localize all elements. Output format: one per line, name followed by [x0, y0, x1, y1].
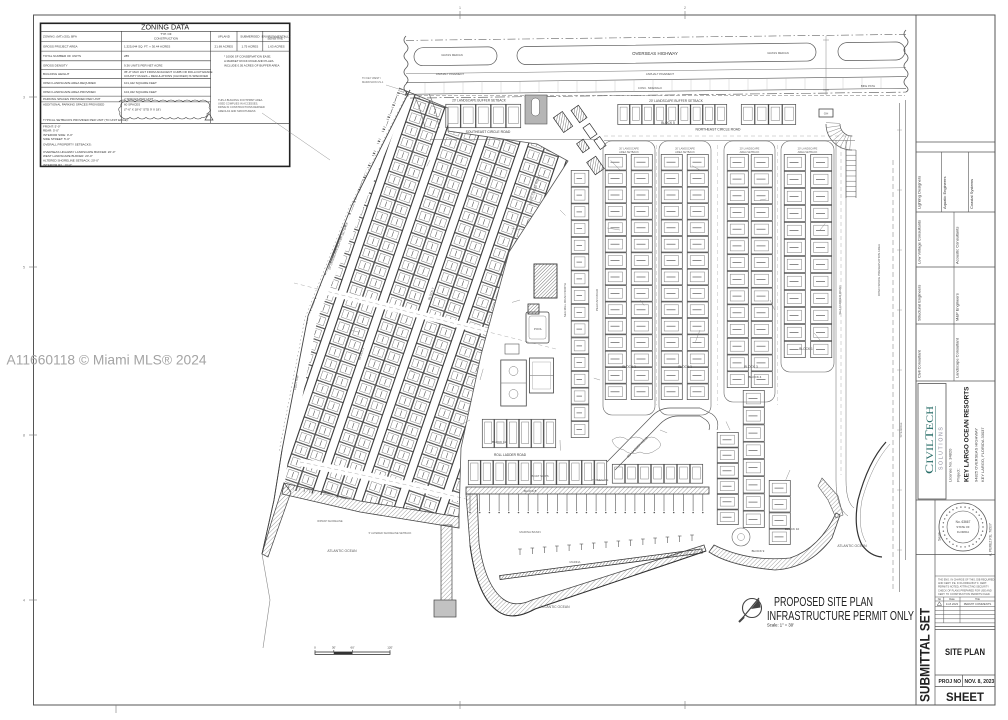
- svg-text:SEA MILL ROAD NORTH: SEA MILL ROAD NORTH: [563, 283, 567, 317]
- svg-text:20' LANDSCAPE BUFFER SETBACK: 20' LANDSCAPE BUFFER SETBACK: [649, 99, 704, 103]
- svg-text:OVERALL PROPERTY SETBACKS:: OVERALL PROPERTY SETBACKS:: [43, 143, 92, 147]
- svg-text:SOUTHEAST CIRCLE ROAD: SOUTHEAST CIRCLE ROAD: [466, 130, 511, 134]
- svg-text:CERT. TO CONSTRUCTION PERMITS: CERT. TO CONSTRUCTION PERMITS FILED.: [938, 593, 991, 596]
- svg-text:OPEN LANDSCAPE AREA PROVIDED: OPEN LANDSCAPE AREA PROVIDED: [43, 90, 97, 94]
- svg-text:AND CERT. P.E. IN FLORIDA BUT: AND CERT. P.E. IN FLORIDA BUT F. CERT.: [938, 582, 987, 585]
- svg-text:RIPRAP SHORELINE: RIPRAP SHORELINE: [317, 519, 343, 523]
- svg-text:DRIVE IN CONSTRUCTIONS DEFINED: DRIVE IN CONSTRUCTIONS DEFINED: [218, 105, 265, 109]
- svg-text:SOLUTIONS: SOLUTIONS: [939, 426, 945, 470]
- svg-text:SEA FARRIER ROAD: SEA FARRIER ROAD: [838, 285, 842, 315]
- svg-text:CONSTRUCTION: CONSTRUCTION: [154, 37, 178, 41]
- svg-text:ROLL LADDER ROAD: ROLL LADDER ROAD: [494, 453, 527, 457]
- svg-text:OPEN LANDSCAPE AREA REQUIRED: OPEN LANDSCAPE AREA REQUIRED: [43, 81, 97, 85]
- svg-text:SUBMERGED: SUBMERGED: [240, 35, 260, 39]
- svg-text:Coastal Systems: Coastal Systems: [969, 179, 974, 209]
- svg-text:AREOLAS AND SMOOTHNESS: AREOLAS AND SMOOTHNESS: [218, 109, 256, 113]
- svg-text:CHECK OF PLANS PREPARED FOR US: CHECK OF PLANS PREPARED FOR USE AND: [938, 589, 992, 592]
- svg-text:NOV. 8, 2023: NOV. 8, 2023: [965, 679, 995, 685]
- svg-text:* 10000 SF CONSERVATION EASE: * 10000 SF CONSERVATION EASE.: [224, 55, 271, 59]
- svg-text:Low Voltage Consultants: Low Voltage Consultants: [917, 220, 922, 264]
- svg-text:PERMIT COMMENTS: PERMIT COMMENTS: [964, 602, 992, 606]
- svg-text:POOL: POOL: [534, 327, 543, 331]
- svg-text:AREA SETBACK: AREA SETBACK: [798, 150, 818, 154]
- svg-text:20' LANDSCAPE: 20' LANDSCAPE: [740, 147, 760, 151]
- svg-text:GROSS PROJECT AREA: GROSS PROJECT AREA: [43, 45, 77, 49]
- svg-text:TO KEY WEST /: TO KEY WEST /: [362, 76, 381, 80]
- svg-text:Title: Title: [975, 597, 980, 601]
- svg-text:FLORIDA: FLORIDA: [957, 530, 969, 534]
- svg-text:UPLAND: UPLAND: [218, 35, 231, 39]
- svg-text:Acoustic Consultants: Acoustic Consultants: [955, 227, 960, 264]
- svg-text:5' ALTERED SHORELINE SETBACK: 5' ALTERED SHORELINE SETBACK: [369, 531, 412, 535]
- svg-text:INCLUDE 0.05 ACRES OF BUFFER A: INCLUDE 0.05 ACRES OF BUFFER AREA: [224, 64, 279, 68]
- svg-text:TOTAL NUMBER OF UNITS: TOTAL NUMBER OF UNITS: [43, 54, 81, 58]
- svg-text:BIKE PATH: BIKE PATH: [861, 84, 875, 88]
- svg-text:104,342 SQUARE FEET: 104,342 SQUARE FEET: [124, 90, 157, 94]
- svg-text:M&P Engineers: M&P Engineers: [955, 293, 960, 321]
- svg-text:ADDITIONAL PARKING SPACES PROV: ADDITIONAL PARKING SPACES PROVIDED: [43, 103, 105, 107]
- svg-text:BOAT SLIPS: BOAT SLIPS: [531, 474, 548, 478]
- svg-text:PELICAN ROAD: PELICAN ROAD: [595, 288, 599, 311]
- svg-text:A11660118 © Miami MLS® 2024: A11660118 © Miami MLS® 2024: [7, 353, 207, 368]
- svg-text:(7'-6" X 18'-0" STD 9' X 18'): (7'-6" X 18'-0" STD 9' X 18'): [124, 108, 161, 112]
- svg-text:Civil Consultant: Civil Consultant: [917, 349, 922, 378]
- svg-text:20' LANDSCAPE: 20' LANDSCAPE: [798, 147, 818, 151]
- svg-text:AREA SETBACK: AREA SETBACK: [740, 150, 760, 154]
- svg-text:KEY LARGO, FLORIDA 33037: KEY LARGO, FLORIDA 33037: [980, 427, 985, 482]
- svg-text:SENSITIVE *: SENSITIVE *: [267, 37, 286, 41]
- svg-text:ZONING: (MT) (SS), BFA: ZONING: (MT) (SS), BFA: [43, 35, 77, 39]
- svg-text:KEY LARGO OCEAN RESORTS: KEY LARGO OCEAN RESORTS: [964, 386, 971, 482]
- svg-text:License No. 34820: License No. 34820: [948, 448, 953, 482]
- svg-text:MARINA: MARINA: [570, 560, 581, 564]
- svg-text:ATLANTIC OCEAN: ATLANTIC OCEAN: [327, 549, 357, 553]
- svg-text:BLOCK 3: BLOCK 3: [622, 365, 636, 369]
- svg-text:ZONING DATA: ZONING DATA: [141, 23, 189, 32]
- svg-text:AREA SETBACK: AREA SETBACK: [675, 150, 695, 154]
- svg-text:BUILDING HEIGHT: BUILDING HEIGHT: [43, 72, 70, 76]
- svg-text:INTERIOR R/L: 10'-0": INTERIOR R/L: 10'-0": [43, 163, 72, 167]
- svg-text:COUNTY RULES + REGULATIONS (CH: COUNTY RULES + REGULATIONS (CHOKER) IS S…: [124, 74, 209, 78]
- svg-text:Aquatic Engineers: Aquatic Engineers: [942, 177, 947, 209]
- svg-text:No. 63667: No. 63667: [956, 520, 971, 524]
- svg-text:20' LANDSCAPE: 20' LANDSCAPE: [675, 147, 695, 151]
- svg-text:ASPHALT PAVEMENT: ASPHALT PAVEMENT: [646, 72, 675, 76]
- svg-text:No: No: [938, 597, 942, 601]
- svg-text:BLOCK 9: BLOCK 9: [752, 549, 765, 553]
- svg-text:SUBMITTAL SET: SUBMITTAL SET: [917, 608, 933, 702]
- svg-text:TYPICAL SETBACKS PROVIDED PER: TYPICAL SETBACKS PROVIDED PER UNIT (TO U…: [43, 118, 129, 122]
- svg-text:Project:: Project:: [956, 468, 961, 482]
- svg-text:USED COMPLIES IN ACCESSES,: USED COMPLIES IN ACCESSES,: [218, 102, 258, 106]
- svg-text:ATLANTIC OCEAN: ATLANTIC OCEAN: [837, 544, 867, 548]
- svg-text:Date: Date: [949, 597, 955, 601]
- svg-text:ASPHALT PAVEMENT: ASPHALT PAVEMENT: [436, 72, 465, 76]
- svg-text:11.8.2023: 11.8.2023: [946, 602, 959, 606]
- svg-text:A MARKET ROCK ROAD AND PLAZA: A MARKET ROCK ROAD AND PLAZA: [224, 59, 274, 63]
- svg-text:1.75 ACRES: 1.75 ACRES: [241, 45, 258, 49]
- svg-text:Landscape Consultant: Landscape Consultant: [955, 337, 960, 378]
- svg-text:285: 285: [124, 54, 129, 58]
- svg-text:1,325,044 SQ. FT. + 30.44 ACRE: 1,325,044 SQ. FT. + 30.44 ACRES: [124, 45, 170, 49]
- svg-text:PROMENADE: PROMENADE: [592, 478, 609, 482]
- svg-text:60 SPACES: 60 SPACES: [124, 103, 140, 107]
- svg-text:INFRASTRUCTURE PERMIT ONLY: INFRASTRUCTURE PERMIT ONLY: [767, 609, 914, 623]
- svg-text:THE ENG. IN CHARGE OF THIS JOB: THE ENG. IN CHARGE OF THIS JOB REQUIRED: [938, 579, 995, 582]
- svg-text:Scale: 1" = 30': Scale: 1" = 30': [767, 623, 794, 628]
- svg-text:GH: GH: [824, 112, 829, 116]
- svg-text:AREA SETBACK: AREA SETBACK: [619, 150, 639, 154]
- svg-text:ATLANTIC OCEAN: ATLANTIC OCEAN: [540, 605, 570, 609]
- svg-text:BLOCK 11: BLOCK 11: [492, 440, 506, 444]
- svg-text:PROPOSED SITE PLAN: PROPOSED SITE PLAN: [774, 595, 873, 609]
- svg-text:SHEET: SHEET: [946, 690, 985, 704]
- svg-text:GROSS DENSITY: GROSS DENSITY: [43, 63, 68, 67]
- svg-text:PERMITS NOTED, ATTRACTING SECU: PERMITS NOTED, ATTRACTING SECURITY: [938, 586, 989, 589]
- svg-text:60': 60': [351, 646, 355, 650]
- svg-text:Lighting Designers: Lighting Designers: [917, 176, 922, 209]
- svg-text:MARINA BASIN: MARINA BASIN: [519, 530, 540, 534]
- svg-text:BLOCK 4: BLOCK 4: [749, 375, 762, 379]
- svg-text:GRASS MEDIAN: GRASS MEDIAN: [767, 51, 788, 55]
- svg-text:BLOCK 3: BLOCK 3: [744, 365, 758, 369]
- svg-text:120': 120': [387, 646, 393, 650]
- svg-text:A. PEREZ P.E. 76507: A. PEREZ P.E. 76507: [989, 523, 993, 556]
- svg-text:1.63 ACRES: 1.63 ACRES: [268, 45, 285, 49]
- svg-text:GRASS MEDIAN: GRASS MEDIAN: [441, 53, 462, 57]
- svg-text:30': 30': [332, 646, 336, 650]
- svg-text:CONC. SIDEWALK: CONC. SIDEWALK: [638, 86, 662, 90]
- svg-text:21.69 ACRES: 21.69 ACRES: [215, 45, 234, 49]
- svg-text:BLOCK 10: BLOCK 10: [785, 527, 800, 531]
- svg-text:OPEN SPACE PRESERVATION AREA: OPEN SPACE PRESERVATION AREA: [877, 244, 881, 296]
- svg-text:20' LANDSCAPE: 20' LANDSCAPE: [619, 147, 639, 151]
- svg-text:SITE PLAN: SITE PLAN: [945, 646, 985, 657]
- svg-text:NORTHEAST CIRCLE ROAD: NORTHEAST CIRCLE ROAD: [696, 128, 741, 132]
- svg-text:SITE EDGE: SITE EDGE: [899, 422, 903, 437]
- svg-text:OVERSEAS HIGHWAY: OVERSEAS HIGHWAY: [632, 51, 678, 56]
- svg-text:PARKING SPACES PROVIDED PER UN: PARKING SPACES PROVIDED PER UNIT: [43, 97, 101, 101]
- svg-text:SIDE STREET: 5'-0": SIDE STREET: 5'-0": [43, 137, 70, 141]
- svg-text:BLOCK 3: BLOCK 3: [678, 365, 692, 369]
- svg-text:Structural Engineers: Structural Engineers: [917, 285, 922, 321]
- svg-text:101,442 SQUARE FEET: 101,442 SQUARE FEET: [124, 81, 157, 85]
- svg-text:STATE OF: STATE OF: [956, 525, 970, 529]
- svg-text:BLOCK 5: BLOCK 5: [661, 121, 675, 125]
- svg-text:BLOCK 1: BLOCK 1: [799, 347, 813, 351]
- svg-text:PROJ NO: PROJ NO: [939, 679, 962, 685]
- svg-text:THIS A BUILDING FOOTPRINT AREA: THIS A BUILDING FOOTPRINT AREA: [218, 98, 263, 102]
- svg-text:20' LANDSCAPE BUFFER SETBACK: 20' LANDSCAPE BUFFER SETBACK: [452, 99, 507, 103]
- svg-text:9.36 UNITS PER NET ACRE: 9.36 UNITS PER NET ACRE: [124, 63, 162, 67]
- svg-text:94825 OVERSEAS HIGHWAY: 94825 OVERSEAS HIGHWAY: [974, 428, 979, 482]
- svg-text:MARATHON US-1: MARATHON US-1: [362, 80, 384, 84]
